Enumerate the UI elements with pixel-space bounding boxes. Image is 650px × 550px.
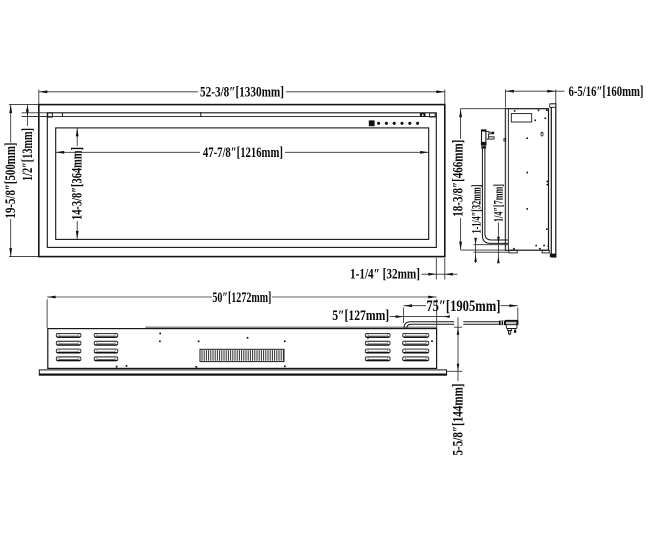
svg-text:1-1/4″[32mm]: 1-1/4″[32mm] — [469, 184, 483, 233]
svg-text:52-3/8″[1330mm]: 52-3/8″[1330mm] — [200, 85, 284, 101]
svg-text:75″[1905mm]: 75″[1905mm] — [426, 298, 500, 315]
svg-text:1-1/4″ [32mm]: 1-1/4″ [32mm] — [350, 266, 420, 282]
svg-text:19-5/8″[500mm]: 19-5/8″[500mm] — [3, 143, 19, 219]
svg-text:6-5/16″[160mm]: 6-5/16″[160mm] — [569, 84, 644, 100]
svg-text:14-3/8″[364mm]: 14-3/8″[364mm] — [70, 147, 86, 220]
svg-text:5-5/8″[144mm]: 5-5/8″[144mm] — [451, 383, 467, 455]
svg-text:1/2″[13mm]: 1/2″[13mm] — [20, 128, 36, 181]
svg-text:50″[1272mm]: 50″[1272mm] — [212, 290, 271, 306]
svg-text:5″[127mm]: 5″[127mm] — [332, 308, 389, 324]
svg-text:1/4″[7mm]: 1/4″[7mm] — [491, 184, 505, 222]
svg-text:47-7/8″[1216mm]: 47-7/8″[1216mm] — [203, 145, 283, 161]
svg-text:18-3/8″[466mm]: 18-3/8″[466mm] — [450, 140, 466, 217]
